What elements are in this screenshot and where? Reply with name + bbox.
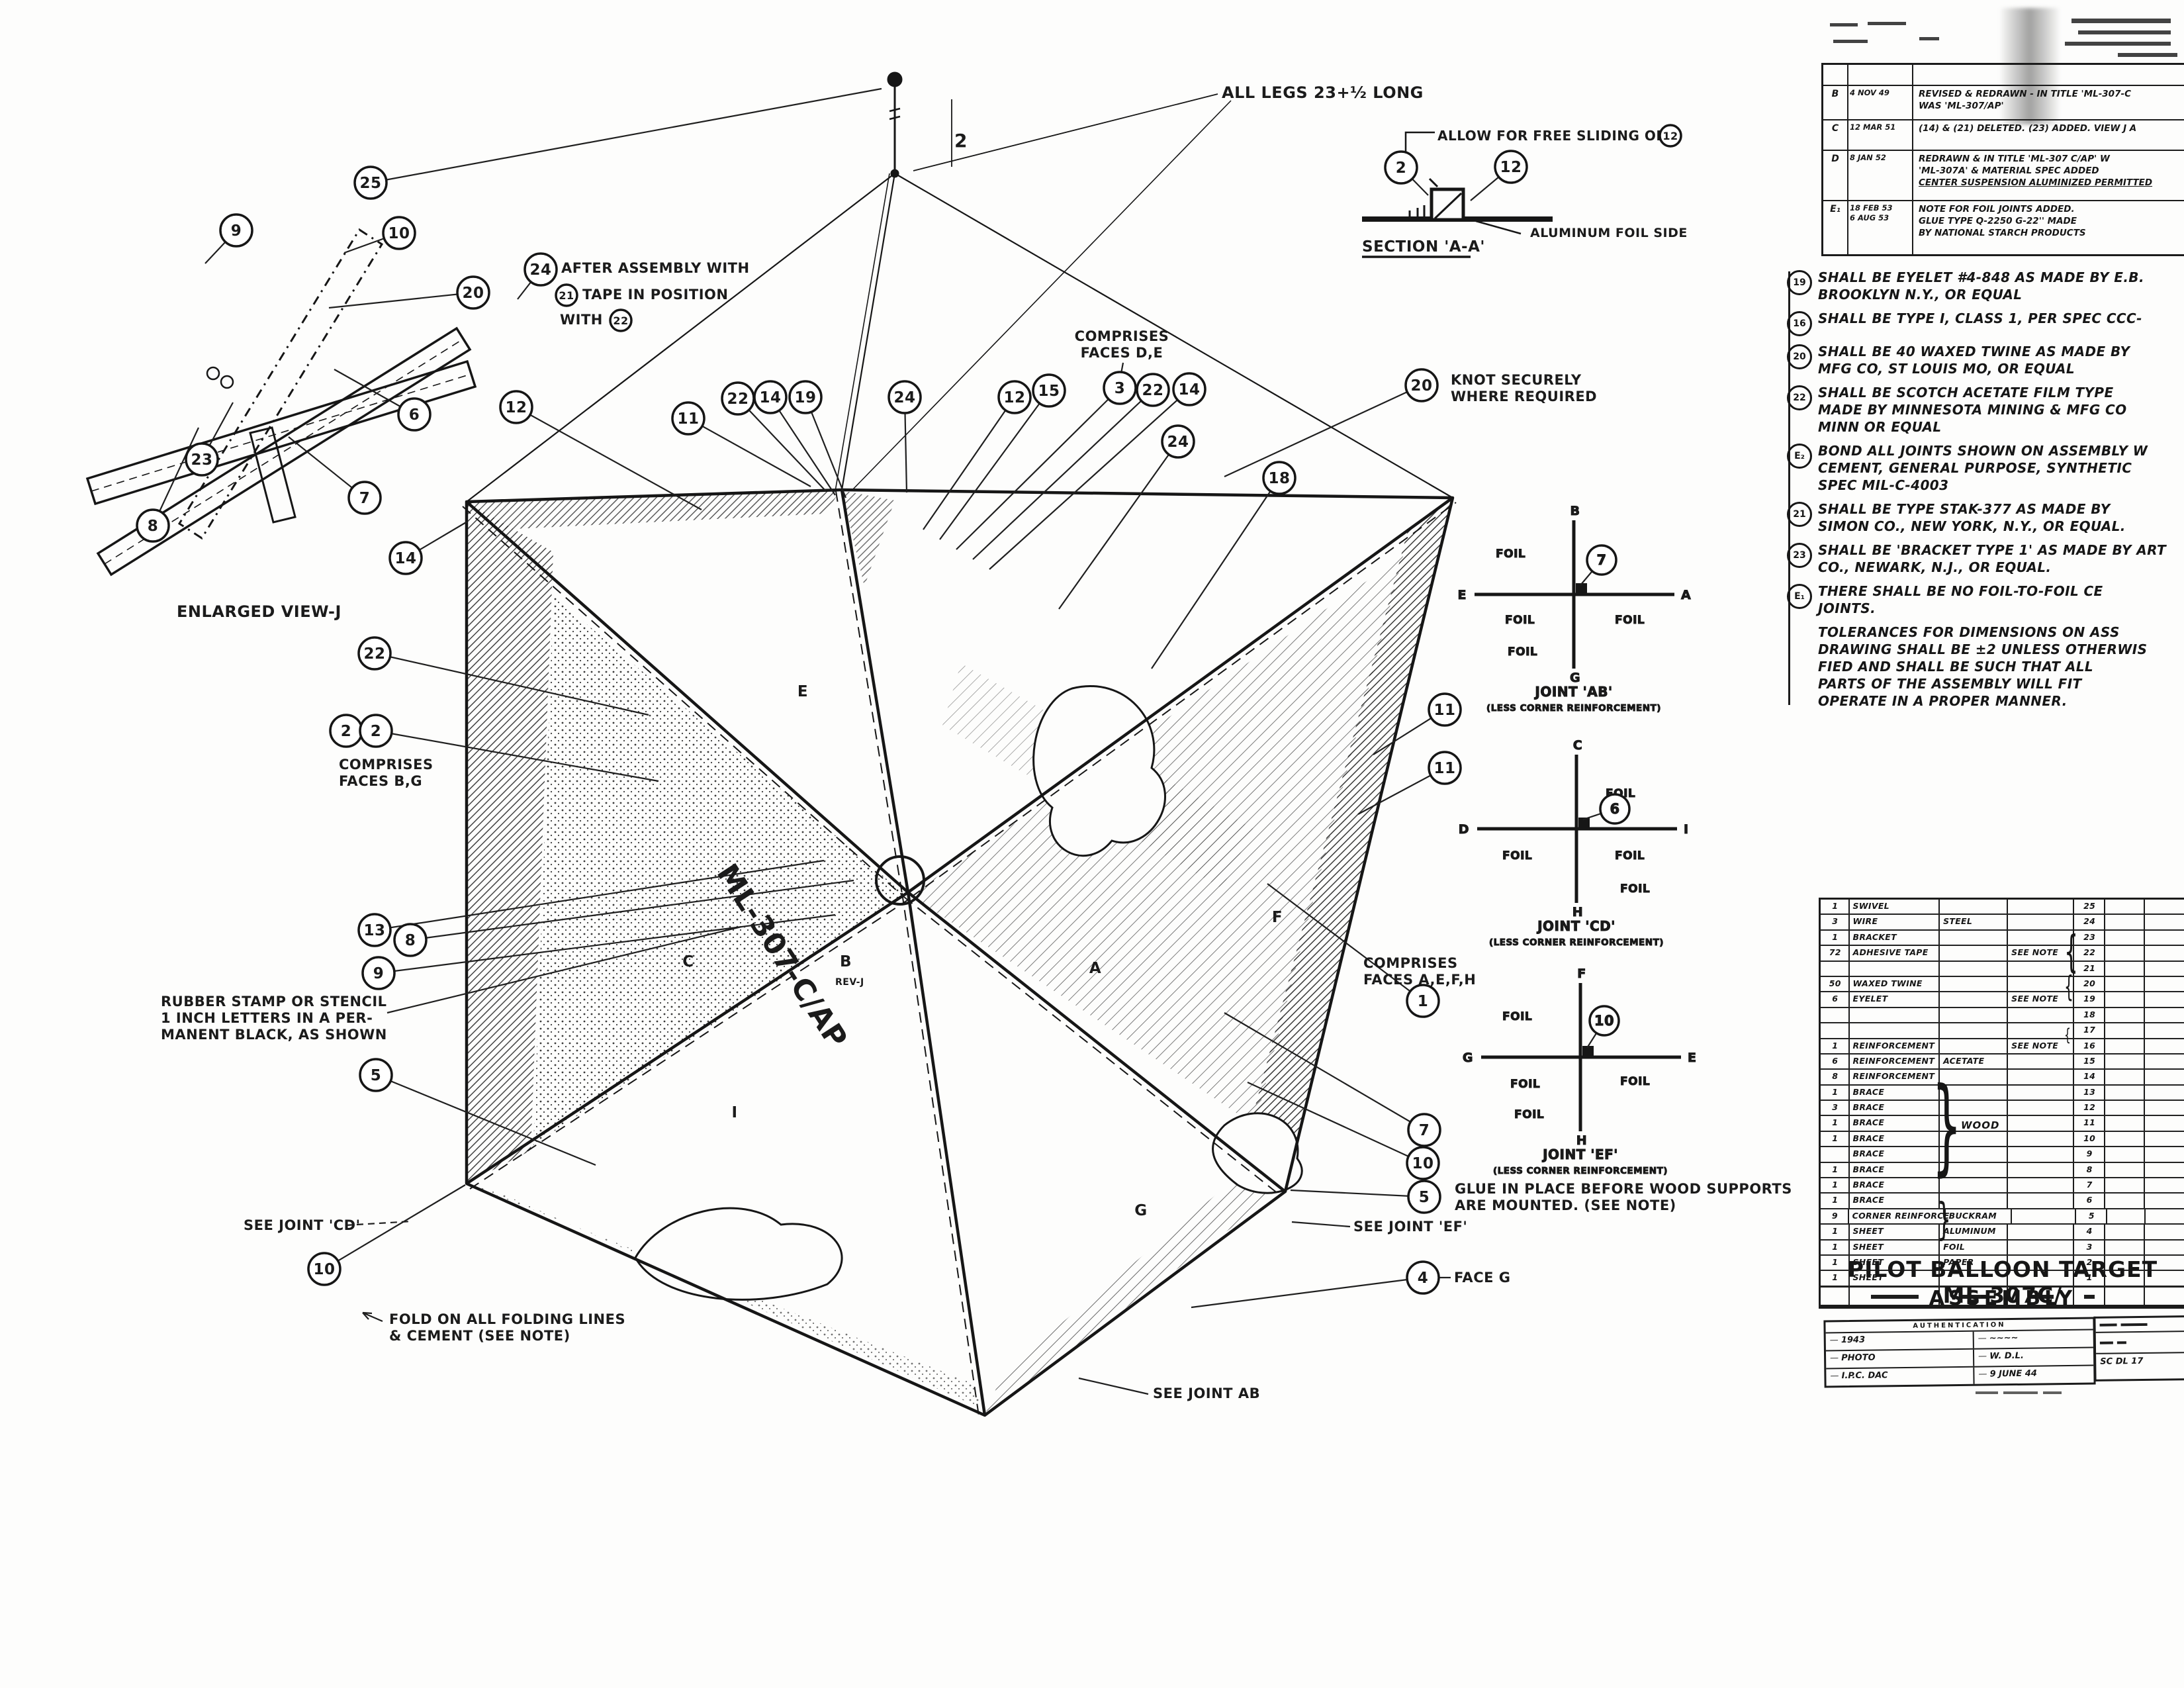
scrap-mark	[2118, 53, 2177, 57]
callout-number: 11	[1433, 760, 1455, 777]
scrap-mark	[1919, 37, 1939, 40]
parts-cell-pq: 1	[1821, 1178, 1850, 1192]
parts-cell-py	[2145, 1070, 2184, 1084]
callout-3: 3	[1104, 372, 1136, 404]
parts-cell-po	[2008, 1070, 2073, 1084]
parts-cell-pn: REINFORCEMENT	[1850, 1070, 1940, 1084]
parts-row: 3BRACE12	[1821, 1101, 2184, 1116]
callout-number: 14	[1178, 381, 1200, 399]
callout-25: 25	[355, 167, 387, 199]
parts-cell-pi: 12	[2074, 1101, 2105, 1115]
revision-row-blank	[1823, 65, 2184, 85]
callout-14: 14	[1173, 373, 1205, 405]
parts-row: 21	[1821, 962, 2184, 977]
callout-number: 15	[1038, 383, 1060, 400]
callout-5: 5	[360, 1059, 392, 1091]
drawing-title-line2: ASSEMBLY	[1821, 1287, 2184, 1310]
drawing-label: MANENT BLACK, AS SHOWN	[161, 1027, 387, 1043]
parts-row: 1BRACKET23	[1821, 931, 2184, 946]
callout-number: 20	[1410, 377, 1432, 395]
callout-6: 6	[398, 399, 430, 430]
callout-number: 2	[341, 723, 352, 740]
drawing-label: FOLD ON ALL FOLDING LINES	[389, 1311, 625, 1327]
callout-number: 24	[1167, 434, 1189, 451]
parts-cell-px	[2105, 1194, 2145, 1207]
parts-cell-px	[2105, 915, 2145, 929]
parts-row: 1REINFORCEMENTSEE NOTE16	[1821, 1039, 2184, 1055]
drawing-label: ARE MOUNTED. (SEE NOTE)	[1455, 1197, 1676, 1213]
parts-cell-po	[2008, 1241, 2073, 1254]
auth-cell: ∼∼∼∼	[1974, 1331, 2093, 1348]
joint-title: JOINT 'CD'	[1536, 918, 1615, 934]
parts-list-table: } WOOD } { { { 1SWIVEL253WIRESTEEL241BRA…	[1819, 898, 2184, 1309]
callout-number: 24	[529, 261, 551, 279]
callout-number: 6	[409, 406, 420, 424]
parts-cell-py	[2145, 1241, 2184, 1254]
parts-cell-pm	[1940, 1023, 2008, 1037]
parts-cell-po	[2008, 1132, 2073, 1146]
parts-cell-pn: WIRE	[1850, 915, 1940, 929]
parts-cell-pi: 15	[2074, 1055, 2105, 1068]
drawing-label: & CEMENT (SEE NOTE)	[389, 1328, 570, 1344]
spec-note: 21SHALL BE TYPE STAK-377 AS MADE BY SIMO…	[1787, 500, 2184, 535]
note-tag: 19	[1787, 270, 1812, 295]
parts-cell-pm	[1940, 1008, 2008, 1022]
callout-number: 11	[1433, 702, 1455, 719]
parts-cell-pi: 11	[2074, 1116, 2105, 1130]
callout-11: 11	[1429, 694, 1461, 726]
callout-number: 1	[1418, 993, 1429, 1010]
auth-row: I.P.C. DAC9 JUNE 44	[1826, 1366, 2093, 1386]
face-letter: C	[682, 953, 694, 970]
scrap-mark	[1833, 40, 1868, 43]
note-tag: 22	[1787, 385, 1812, 410]
callout-number: 24	[893, 389, 915, 406]
parts-cell-pm	[1940, 1039, 2008, 1053]
joint-letter: D	[1459, 822, 1469, 837]
fineprint-marks	[1976, 1391, 2101, 1394]
parts-cell-px	[2105, 1070, 2145, 1084]
spec-note: TOLERANCES FOR DIMENSIONS ON ASS DRAWING…	[1787, 624, 2184, 710]
parts-cell-pi: 3	[2074, 1241, 2105, 1254]
parts-cell-pq	[1821, 1008, 1850, 1022]
parts-row: 1BRACE8	[1821, 1163, 2184, 1178]
callout-number: 5	[371, 1067, 382, 1084]
callout-1: 1	[1407, 985, 1439, 1017]
parts-cell-po	[2008, 1147, 2073, 1161]
callout-number: 12	[1003, 389, 1025, 406]
callout-number: 23	[191, 451, 212, 469]
parts-cell-pn: EYELET	[1850, 992, 1940, 1006]
drawing-label: SEE JOINT AB	[1153, 1385, 1260, 1401]
parts-cell-pq: 1	[1821, 1086, 1850, 1100]
after-assembly-note-1: AFTER ASSEMBLY WITH	[561, 260, 750, 276]
drawing-label: SEE JOINT 'EF'	[1353, 1219, 1467, 1235]
joint-title: JOINT 'AB'	[1533, 684, 1612, 700]
note-text: SHALL BE 40 WAXED TWINE AS MADE BY MFG C…	[1818, 343, 2130, 377]
parts-cell-po	[2008, 1225, 2073, 1239]
callout-number: 13	[363, 922, 385, 939]
parts-cell-pq: 1	[1821, 1225, 1850, 1239]
drawing-label: FACES D,E	[1081, 345, 1163, 361]
drawing-label: COMPRISES	[1363, 955, 1458, 971]
parts-cell-po	[2008, 1008, 2073, 1022]
parts-cell-py	[2145, 1008, 2184, 1022]
note-text: SHALL BE TYPE STAK-377 AS MADE BY SIMON …	[1818, 500, 2126, 535]
used-on-number: SC DL 17	[2096, 1353, 2184, 1374]
used-on-block: SC DL 17	[2093, 1315, 2184, 1382]
joint-letter: A	[1681, 588, 1691, 602]
joint-letter: H	[1576, 1133, 1587, 1148]
parts-cell-py	[2145, 1116, 2184, 1130]
callout-2: 2	[330, 715, 362, 747]
foil-label: FOIL	[1615, 614, 1645, 627]
drawing-label: FACES B,G	[339, 773, 422, 789]
parts-cell-px	[2105, 900, 2145, 914]
rev-desc	[1913, 65, 2184, 85]
parts-cell-pm	[1940, 977, 2008, 991]
parts-cell-pi: 18	[2074, 1008, 2105, 1022]
joint-subtitle: (LESS CORNER REINFORCEMENT)	[1486, 703, 1661, 714]
parts-cell-pn: SWIVEL	[1850, 900, 1940, 914]
parts-cell-px	[2105, 1163, 2145, 1177]
parts-cell-pm	[1940, 931, 2008, 945]
parts-cell-pn: CORNER REINFORCE	[1849, 1209, 1946, 1223]
callout-number: 11	[677, 410, 699, 428]
parts-cell-pq: 8	[1821, 1070, 1850, 1084]
parts-cell-pi: 6	[2074, 1194, 2105, 1207]
callout-2: 2	[360, 715, 392, 747]
parts-cell-pi: 23	[2074, 931, 2105, 945]
enlarged-view-caption: ENLARGED VIEW-J	[177, 602, 341, 621]
spec-note: E₂BOND ALL JOINTS SHOWN ON ASSEMBLY W CE…	[1787, 442, 2184, 494]
parts-cell-px	[2105, 977, 2145, 991]
callout-number: 7	[359, 490, 371, 507]
parts-cell-pq: 6	[1821, 1055, 1850, 1068]
inline-callout-12-num: 12	[1662, 130, 1678, 142]
parts-cell-pn: BRACE	[1850, 1147, 1940, 1161]
parts-cell-pn: BRACE	[1850, 1116, 1940, 1130]
callout-15: 15	[1033, 375, 1065, 406]
parts-cell-py	[2145, 977, 2184, 991]
parts-cell-py	[2145, 1023, 2184, 1037]
parts-cell-po	[2008, 1194, 2073, 1207]
callout-4: 4	[1407, 1262, 1439, 1293]
parts-cell-py	[2145, 1132, 2184, 1146]
parts-cell-pn: REINFORCEMENT	[1850, 1039, 1940, 1053]
parts-cell-pq: 1	[1821, 1241, 1850, 1254]
parts-cell-py	[2145, 1163, 2184, 1177]
parts-cell-pi: 13	[2074, 1086, 2105, 1100]
parts-cell-px	[2105, 1101, 2145, 1115]
parts-cell-py	[2145, 900, 2184, 914]
parts-cell-pi: 21	[2074, 962, 2105, 976]
revision-row: B4 NOV 49REVISED & REDRAWN - IN TITLE 'M…	[1823, 85, 2184, 119]
parts-row: 1SHEETFOIL3	[1821, 1241, 2184, 1256]
parts-cell-pn: BRACKET	[1850, 931, 1940, 945]
callout-18: 18	[1263, 462, 1295, 494]
wood-group-brace: }	[1932, 1065, 1962, 1187]
spec-note: 23SHALL BE 'BRACKET TYPE 1' AS MADE BY A…	[1787, 541, 2184, 576]
parts-cell-po	[2008, 900, 2073, 914]
foil-label: FOIL	[1502, 849, 1532, 863]
callout-number: 19	[794, 389, 816, 406]
parts-cell-px	[2105, 1225, 2145, 1239]
foil-label: FOIL	[1514, 1108, 1544, 1121]
parts-cell-pi: 16	[2074, 1039, 2105, 1053]
parts-row: 1BRACE11	[1821, 1116, 2184, 1131]
note-tag: 23	[1787, 543, 1812, 568]
parts-cell-pq: 1	[1821, 1194, 1850, 1207]
callout-number: 10	[313, 1261, 335, 1278]
rev-desc: NOTE FOR FOIL JOINTS ADDED.GLUE TYPE Q-2…	[1913, 201, 2184, 254]
parts-cell-px	[2107, 1209, 2146, 1223]
drawing-label: SEE JOINT 'CD'	[244, 1217, 361, 1233]
parts-row: 8REINFORCEMENT14	[1821, 1070, 2184, 1085]
authentication-block: AUTHENTICATION 1943∼∼∼∼PHOTOW. D.L.I.P.C…	[1823, 1317, 2095, 1387]
drawing-label: FACE G	[1454, 1270, 1511, 1286]
note-tag: 21	[1787, 502, 1812, 527]
callout-number: 22	[363, 645, 385, 663]
foil-label: FOIL	[1615, 849, 1645, 863]
callout-20: 20	[1406, 369, 1437, 401]
parts-cell-pq	[1821, 1147, 1850, 1161]
parts-cell-pi: 17	[2074, 1023, 2105, 1037]
callout-number: 3	[1115, 380, 1126, 397]
parts-row: 18	[1821, 1008, 2184, 1023]
callout-number: 2	[1396, 160, 1407, 177]
auth-cell: 1943	[1826, 1332, 1974, 1350]
drawing-label: COMPRISES	[1075, 328, 1169, 344]
parts-cell-pq: 1	[1821, 1163, 1850, 1177]
parts-cell-pi: 19	[2074, 992, 2105, 1006]
used-on-marks	[2096, 1332, 2184, 1354]
revision-row: D8 JAN 52REDRAWN & IN TITLE 'ML-307 C/AP…	[1823, 150, 2184, 200]
parts-cell-po	[2012, 1209, 2076, 1223]
parts-cell-py	[2145, 1101, 2184, 1115]
revision-table: B4 NOV 49REVISED & REDRAWN - IN TITLE 'M…	[1821, 63, 2184, 256]
face-letter: E	[797, 683, 808, 700]
parts-row: 1BRACE10	[1821, 1132, 2184, 1147]
callout-number: 12	[1500, 159, 1522, 176]
face-letter: G	[1134, 1202, 1147, 1219]
note-text: SHALL BE 'BRACKET TYPE 1' AS MADE BY ART…	[1818, 541, 2166, 576]
callout-number: 10	[1412, 1155, 1433, 1172]
callout-number: 5	[1419, 1189, 1430, 1206]
parts-cell-pi: 9	[2074, 1147, 2105, 1161]
callout-24: 24	[889, 381, 921, 413]
parts-row: 1SWIVEL25	[1821, 900, 2184, 915]
parts-cell-pn: SHEET	[1850, 1225, 1940, 1239]
joint-letter: F	[1577, 966, 1586, 981]
parts-cell-po	[2008, 1101, 2073, 1115]
dim-2: 2	[954, 130, 968, 152]
spec-note: 16SHALL BE TYPE I, CLASS 1, PER SPEC CCC…	[1787, 310, 2184, 336]
spec-notes: 19SHALL BE EYELET #4-848 AS MADE BY E.B.…	[1787, 269, 2184, 716]
parts-cell-pq: 1	[1821, 1116, 1850, 1130]
parts-cell-px	[2105, 1086, 2145, 1100]
callout-number: 2	[371, 723, 382, 740]
callout-number: 7	[1596, 552, 1606, 568]
parts-cell-px	[2105, 1178, 2145, 1192]
drawing-label: KNOT SECURELY	[1451, 372, 1582, 388]
callout-11: 11	[672, 402, 704, 434]
parts-cell-py	[2145, 1055, 2184, 1068]
drawing-label: COMPRISES	[339, 757, 433, 773]
foil-label: FOIL	[1620, 882, 1650, 896]
note-text: SHALL BE TYPE I, CLASS 1, PER SPEC CCC-	[1818, 310, 2142, 327]
callout-number: 14	[394, 550, 416, 567]
parts-cell-pn	[1850, 1023, 1940, 1037]
parts-row: 6EYELETSEE NOTE19	[1821, 992, 2184, 1008]
parts-cell-po	[2008, 1086, 2073, 1100]
parts-cell-pn: BRACE	[1850, 1163, 1940, 1177]
callout-number: 9	[231, 222, 242, 240]
parts-cell-px	[2105, 1241, 2145, 1254]
drawing-label: ALL LEGS 23+½ LONG	[1222, 83, 1424, 102]
callout-12: 12	[999, 381, 1030, 413]
parts-cell-px	[2105, 1008, 2145, 1022]
sheet-group-brace: }	[1937, 1194, 1951, 1244]
callout-24: 24	[1162, 426, 1194, 457]
parts-row: 1BRACE13	[1821, 1086, 2184, 1101]
auth-cell: W. D.L.	[1974, 1348, 2093, 1366]
parts-cell-pm	[1940, 900, 2008, 914]
rev-letter: B	[1823, 86, 1848, 119]
parts-cell-pn: BRACE	[1850, 1086, 1940, 1100]
parts-cell-pq	[1821, 962, 1850, 976]
parts-row: 17	[1821, 1023, 2184, 1039]
drawing-label: GLUE IN PLACE BEFORE WOOD SUPPORTS	[1455, 1181, 1792, 1197]
foil-label: FOIL	[1496, 547, 1525, 561]
rev-date	[1848, 65, 1913, 85]
rev-letter: D	[1823, 151, 1848, 200]
parts-row: 1SHEETALUMINUM4	[1821, 1225, 2184, 1240]
callout-19: 19	[790, 381, 821, 413]
callout-22: 22	[1137, 374, 1169, 406]
callout-22: 22	[722, 383, 754, 414]
callout-number: 22	[727, 391, 749, 408]
rev-date: 4 NOV 49	[1848, 86, 1913, 119]
parts-cell-px	[2105, 931, 2145, 945]
note-tag: E₂	[1787, 444, 1812, 469]
parts-cell-py	[2145, 1225, 2184, 1239]
foil-label: FOIL	[1508, 645, 1537, 659]
parts-cell-po	[2008, 1116, 2073, 1130]
parts-cell-pq: 50	[1821, 977, 1850, 991]
rev-letter: E₁	[1823, 201, 1848, 254]
callout-10: 10	[1407, 1147, 1439, 1179]
callout-number: 20	[462, 285, 484, 302]
parts-cell-py	[2145, 946, 2184, 960]
callout-8: 8	[137, 510, 169, 541]
scrap-mark	[1830, 23, 1858, 26]
note-text: SHALL BE EYELET #4-848 AS MADE BY E.B. B…	[1818, 269, 2144, 303]
parts-row: 9CORNER REINFORCEBUCKRAM5	[1821, 1209, 2184, 1225]
callout-10: 10	[308, 1253, 340, 1285]
face-letter: F	[1272, 909, 1283, 926]
rev-desc: (14) & (21) DELETED. (23) ADDED. VIEW J …	[1913, 120, 2184, 150]
drawing-label: 1 INCH LETTERS IN A PER-	[161, 1010, 373, 1026]
note-tag: E₁	[1787, 584, 1812, 609]
parts-cell-py	[2145, 962, 2184, 976]
parts-cell-py	[2145, 1039, 2184, 1053]
parts-cell-pq: 72	[1821, 946, 1850, 960]
parts-cell-pn: BRACE	[1850, 1194, 1940, 1207]
foil-side-label: ALUMINUM FOIL SIDE	[1530, 226, 1688, 240]
scrap-mark	[2078, 30, 2171, 34]
drawing-sheet: BEAGFOILFOILFOILFOILJOINT 'AB'(LESS CORN…	[0, 0, 2184, 1688]
spec-note: E₁THERE SHALL BE NO FOIL-TO-FOIL CE JOIN…	[1787, 583, 2184, 617]
parts-cell-pi: 14	[2074, 1070, 2105, 1084]
parts-cell-pq: 9	[1821, 1209, 1849, 1223]
parts-cell-px	[2105, 1023, 2145, 1037]
joint-title: JOINT 'EF'	[1541, 1147, 1618, 1162]
parts-cell-px	[2105, 1132, 2145, 1146]
parts-cell-pn: BRACE	[1850, 1101, 1940, 1115]
parts-cell-py	[2145, 915, 2184, 929]
joint-letter: B	[1570, 504, 1580, 518]
callout-number: 8	[148, 518, 159, 535]
inline-callout-22-num: 22	[613, 314, 628, 327]
rev-letter: C	[1823, 120, 1848, 150]
callout-number: 8	[405, 932, 416, 949]
parts-cell-pi: 24	[2074, 915, 2105, 929]
joint-subtitle: (LESS CORNER REINFORCEMENT)	[1493, 1166, 1668, 1176]
parts-cell-pq: 3	[1821, 1101, 1850, 1115]
callout-13: 13	[359, 914, 390, 946]
rev-tag: REV-J	[835, 977, 864, 988]
parts-row: 72ADHESIVE TAPESEE NOTE22	[1821, 946, 2184, 961]
callout-20: 20	[457, 277, 489, 308]
scrap-mark	[2065, 42, 2171, 46]
joint-detail-cd: CDIHFOILFOILFOILFOILJOINT 'CD'(LESS CORN…	[1459, 738, 1689, 948]
parts-cell-px	[2105, 1116, 2145, 1130]
callout-number: 9	[373, 965, 385, 982]
parts-cell-pn: SHEET	[1850, 1241, 1940, 1254]
revision-row: C12 MAR 51(14) & (21) DELETED. (23) ADDE…	[1823, 119, 2184, 150]
parts-row: 6REINFORCEMENTACETATE15	[1821, 1055, 2184, 1070]
sliding-note: ALLOW FOR FREE SLIDING OF	[1437, 128, 1666, 144]
parts-cell-pq: 1	[1821, 931, 1850, 945]
parts-cell-pi: 4	[2074, 1225, 2105, 1239]
parts-cell-py	[2145, 1086, 2184, 1100]
callout-number: 12	[505, 399, 527, 416]
parts-cell-pm	[1940, 946, 2008, 960]
foil-label: FOIL	[1510, 1078, 1540, 1091]
revision-row: E₁18 FEB 53 6 AUG 53NOTE FOR FOIL JOINTS…	[1823, 200, 2184, 254]
parts-cell-pi: 25	[2074, 900, 2105, 914]
see-note-brace-2: {	[2064, 970, 2073, 1004]
callout-12: 12	[1495, 151, 1527, 183]
see-note-brace-3: {	[2064, 1025, 2071, 1045]
scrap-mark	[2071, 19, 2171, 23]
callout-14: 14	[390, 542, 422, 574]
parts-cell-pq: 6	[1821, 992, 1850, 1006]
parts-cell-py	[2145, 1178, 2184, 1192]
callout-number: 10	[388, 225, 410, 242]
parts-cell-pi: 22	[2074, 946, 2105, 960]
parts-cell-py	[2146, 1209, 2184, 1223]
rev-desc: REVISED & REDRAWN - IN TITLE 'ML-307-CWA…	[1913, 86, 2184, 119]
callout-number: 14	[759, 389, 781, 406]
joint-letter: E	[1458, 588, 1467, 602]
callout-12: 12	[500, 391, 532, 423]
parts-cell-px	[2105, 992, 2145, 1006]
auth-cell: 9 JUNE 44	[1974, 1366, 2093, 1384]
parts-cell-pi: 20	[2074, 977, 2105, 991]
drawing-label: RUBBER STAMP OR STENCIL	[161, 994, 387, 1009]
